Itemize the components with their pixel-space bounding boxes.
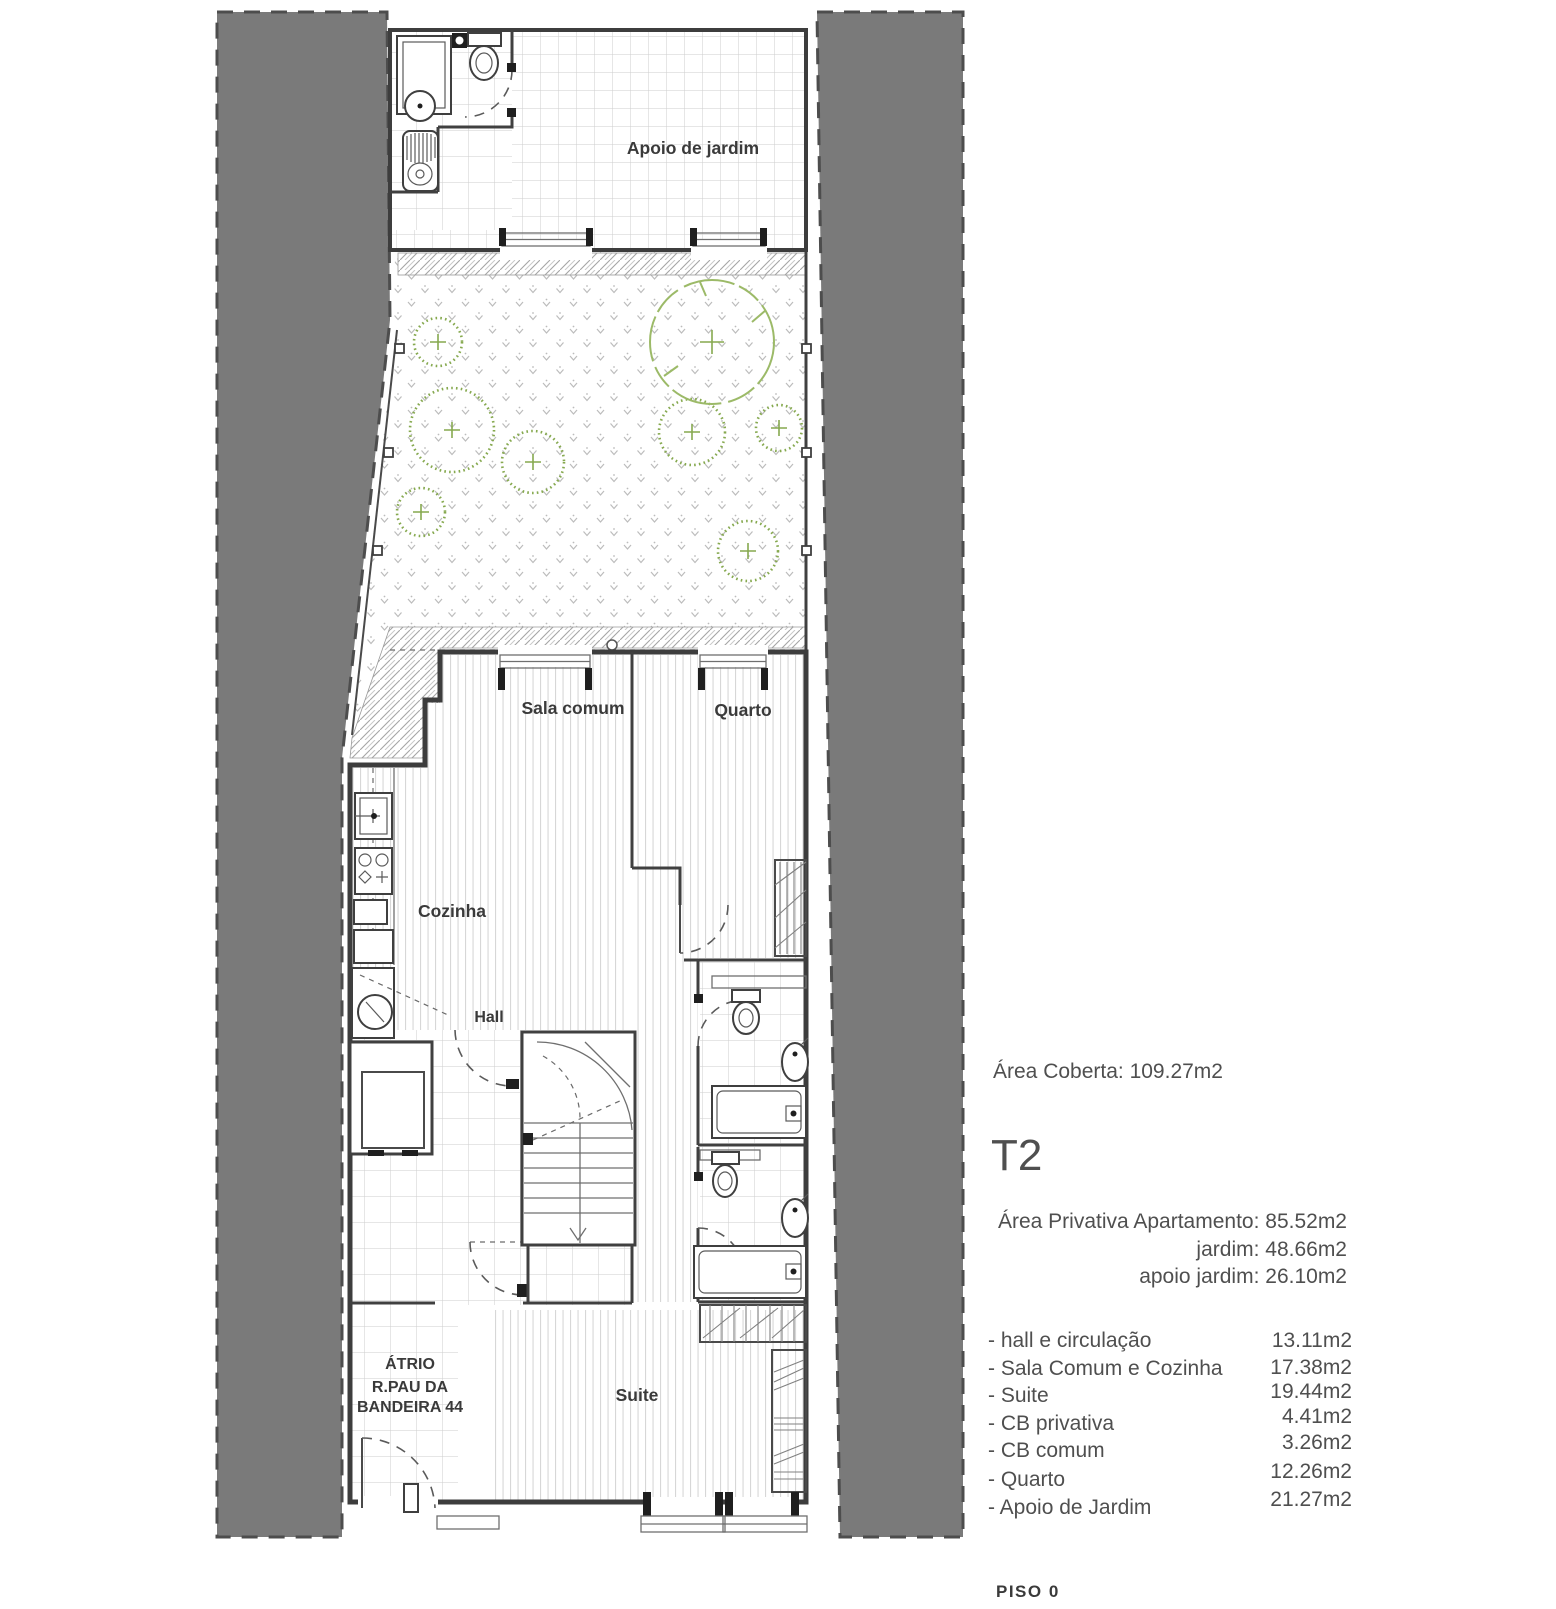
floor-level-label: PISO 0 (996, 1582, 1060, 1601)
room-label-atrio-line3: BANDEIRA 44 (357, 1399, 463, 1416)
apoio-washer (405, 91, 435, 121)
door-jamb (507, 108, 516, 117)
apoio-toilet (468, 33, 501, 80)
elevator-symbol (350, 1042, 432, 1156)
private-areas-block: Área Privativa Apartamento: 85.52m2 jard… (998, 1210, 1347, 1288)
kitchen-sink-symbol (355, 793, 392, 839)
room-area-label: - hall e circulação (988, 1329, 1151, 1352)
kitchen-stove-symbol (355, 848, 392, 894)
toilet-symbol (712, 1152, 739, 1197)
door-jamb (507, 63, 516, 72)
kitchen-cabinet (354, 930, 393, 963)
private-area-line: jardim: 48.66m2 (1195, 1238, 1347, 1261)
room-area-value: 19.44m2 (1270, 1380, 1352, 1403)
room-label-quarto: Quarto (714, 700, 771, 720)
private-area-line: Área Privativa Apartamento: 85.52m2 (998, 1210, 1347, 1233)
unit-type-text: T2 (991, 1131, 1042, 1180)
room-area-value: 17.38m2 (1270, 1356, 1352, 1379)
apoio-building: Apoio de jardim (390, 30, 806, 260)
main-building: Sala comum Quarto Cozinha Hall Suite ÁTR… (350, 645, 808, 1532)
floor-corridor (637, 958, 698, 1302)
private-area-line: apoio jardim: 26.10m2 (1139, 1265, 1347, 1288)
door-jamb (506, 1079, 519, 1089)
room-label-apoio-de-jardim: Apoio de jardim (627, 138, 759, 158)
room-label-suite: Suite (616, 1385, 659, 1405)
garden-drain (607, 640, 617, 650)
apoio-bathtub (403, 131, 438, 191)
room-area-value: 3.26m2 (1282, 1431, 1352, 1454)
room-label-cozinha: Cozinha (418, 901, 486, 921)
room-label-hall: Hall (474, 1009, 503, 1026)
room-area-label: - Suite (988, 1384, 1049, 1407)
info-panel: Área Coberta: 109.27m2 T2 Área Privativa… (988, 1060, 1352, 1519)
floor-plan-svg: Apoio de jardim (0, 0, 1556, 1609)
floor-plan-page: Apoio de jardim (0, 0, 1556, 1609)
room-label-atrio-line1: ÁTRIO (385, 1354, 435, 1373)
toilet-symbol (732, 990, 760, 1034)
room-areas-list: - hall e circulação 13.11m2 - Sala Comum… (988, 1329, 1352, 1519)
bathtub-symbol (712, 1086, 806, 1138)
area-coberta-text: Área Coberta: 109.27m2 (993, 1060, 1223, 1083)
door-jamb (694, 1172, 703, 1181)
room-area-label: - Sala Comum e Cozinha (988, 1357, 1223, 1380)
room-area-label: - CB privativa (988, 1412, 1114, 1435)
room-area-value: 21.27m2 (1270, 1488, 1352, 1511)
right-setback-area (817, 12, 963, 1537)
room-area-value: 13.11m2 (1272, 1329, 1352, 1352)
door-jamb (523, 1133, 533, 1145)
room-area-label: - Apoio de Jardim (988, 1496, 1151, 1519)
room-area-label: - Quarto (988, 1468, 1065, 1491)
room-area-label: - CB comum (988, 1439, 1105, 1462)
door-jamb (694, 994, 703, 1003)
bathtub-symbol (694, 1246, 806, 1298)
room-label-sala-comum: Sala comum (521, 698, 624, 718)
apoio-drain-box (452, 33, 467, 48)
room-area-value: 4.41m2 (1282, 1405, 1352, 1428)
room-label-atrio-line2: R.PAU DA (372, 1379, 449, 1396)
kitchen-cabinet (354, 900, 387, 924)
floor-suite (493, 1310, 806, 1500)
room-area-value: 12.26m2 (1270, 1460, 1352, 1483)
door-jamb (517, 1284, 528, 1297)
